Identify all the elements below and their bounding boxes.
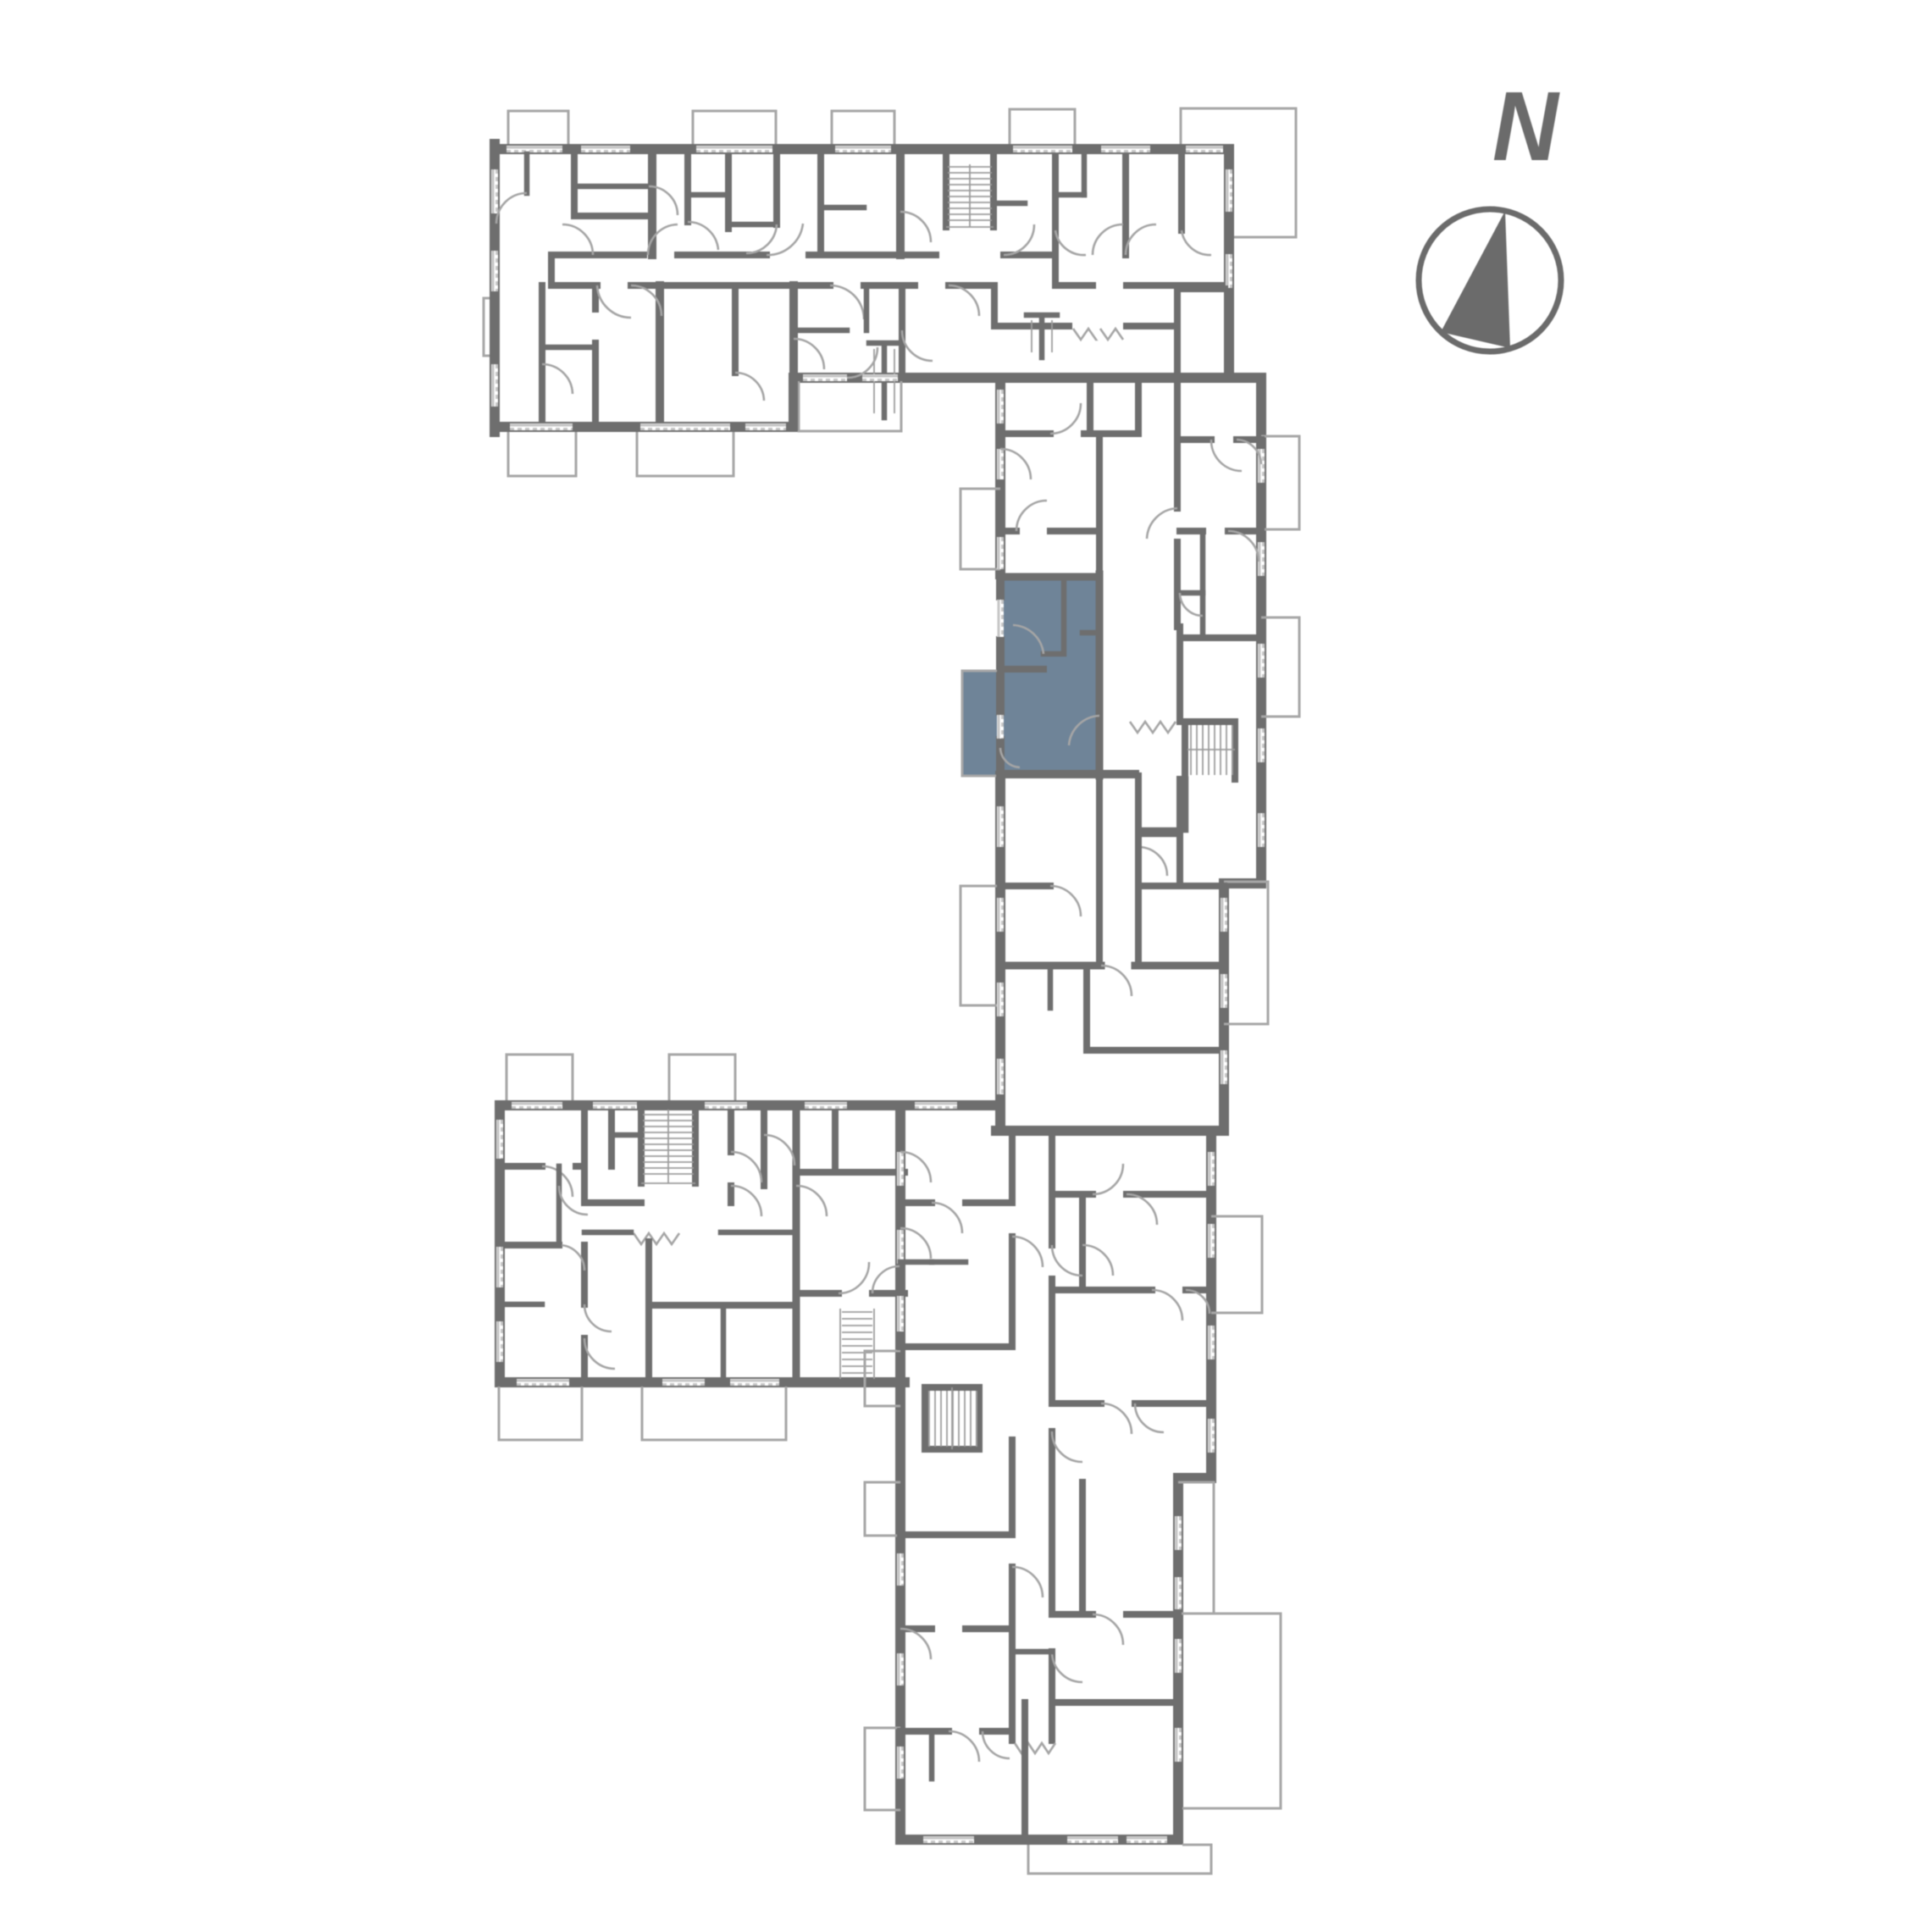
svg-text:N: N xyxy=(1492,71,1560,180)
